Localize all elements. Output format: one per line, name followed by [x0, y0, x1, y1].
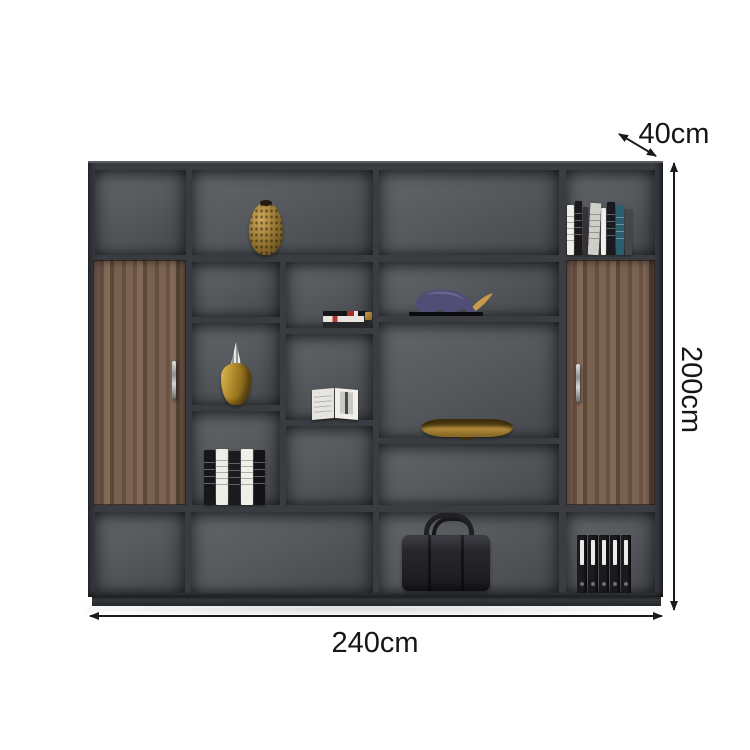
height-dimension-label: 200cm: [676, 346, 706, 433]
depth-dimension-label: 40cm: [636, 119, 712, 149]
width-dimension-label: 240cm: [325, 628, 425, 658]
product-scene: 40cm 200cm 240cm: [0, 0, 750, 750]
